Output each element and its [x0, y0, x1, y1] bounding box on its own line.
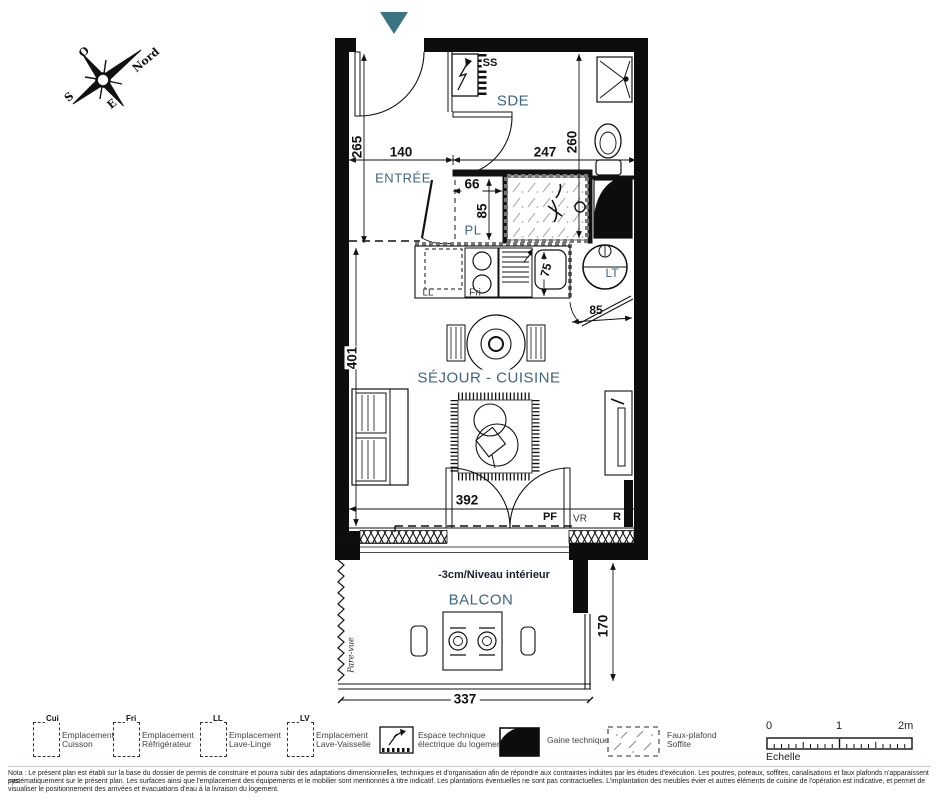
- legend-faux-plafond-icon: [607, 726, 661, 759]
- shower: [506, 176, 588, 241]
- sofa: [352, 389, 408, 485]
- legend-lave-vaisselle-label: Emplacement Lave-Vaisselle: [316, 731, 371, 749]
- dim-337: 337: [451, 692, 480, 707]
- dim-170: 170: [596, 615, 611, 638]
- legend-lave-linge-tag: LL: [212, 714, 224, 723]
- footer-divider: [8, 766, 931, 767]
- floor-plan-page: Nord O S E SDE ENTRÉE PL SÉJOUR - CUISIN…: [0, 0, 939, 800]
- room-label-sde: SDE: [497, 93, 529, 110]
- legend-espace-technique-label: Espace technique électrique du logement: [418, 731, 504, 749]
- room-label-pl: PL: [465, 223, 482, 238]
- dim-140: 140: [387, 145, 416, 160]
- electrical-panel: [452, 54, 478, 96]
- room-label-balcon: BALCON: [449, 592, 514, 609]
- legend-cuisson-tag: Cui: [45, 714, 60, 723]
- label-lt: LT: [605, 266, 618, 280]
- legend-gaine-technique-label: Gaine technique: [547, 736, 609, 745]
- legend-cuisson-icon: [33, 722, 60, 757]
- sde-door: [453, 112, 512, 176]
- technical-duct: [594, 180, 632, 238]
- dim-85-pl: 85: [475, 203, 490, 218]
- exterior-walls: [335, 38, 648, 613]
- legend-espace-technique-icon: [379, 725, 415, 756]
- label-pare-vue: Pare-vue: [347, 637, 356, 672]
- dim-85-door: 85: [589, 303, 602, 317]
- scale-2m: 2m: [898, 720, 913, 732]
- legend-faux-plafond-label: Faux-plafond Soffite: [667, 731, 717, 749]
- label-fri: Fri: [469, 288, 481, 299]
- radiator: [624, 480, 633, 527]
- scale-0: 0: [766, 720, 772, 732]
- dim-66: 66: [461, 177, 482, 192]
- legend-refrigerateur-icon: [113, 722, 140, 757]
- legend-lave-vaisselle-tag: LV: [299, 714, 311, 723]
- legend-cuisson-label: Emplacement Cuisson: [62, 731, 114, 749]
- nota-line-3: visualiser le positionnement des arrivée…: [8, 786, 933, 794]
- nota-line-2: systématiquement sur le présent plan. Le…: [8, 778, 933, 786]
- legend-gaine-technique-icon: [499, 727, 541, 758]
- dim-265: 265: [350, 136, 365, 159]
- legend-lave-vaisselle-icon: [287, 722, 314, 757]
- room-label-entree: ENTRÉE: [375, 171, 431, 186]
- dim-260: 260: [565, 131, 580, 154]
- soffit-dashed-lines: [349, 241, 577, 532]
- toilet: [595, 124, 621, 175]
- rug-and-armchair: [454, 396, 536, 477]
- label-pf: PF: [543, 511, 557, 523]
- entry-marker-icon: [380, 12, 408, 34]
- label-ss: SS: [482, 57, 499, 69]
- closet-door: [422, 180, 453, 244]
- entry-door: [355, 52, 424, 116]
- room-label-sejour-cuisine: SÉJOUR - CUISINE: [415, 370, 562, 387]
- washbasin: [597, 57, 632, 102]
- label-ll: LL: [422, 288, 433, 299]
- label-r: R: [613, 511, 621, 523]
- label-vr: VR: [573, 514, 587, 525]
- legend-lave-linge-icon: [200, 722, 227, 757]
- legend-refrigerateur-tag: Fri: [125, 714, 137, 723]
- sideboard: [605, 391, 632, 475]
- scale-caption: Echelle: [766, 751, 800, 763]
- legend-lave-linge-label: Emplacement Lave-Linge: [229, 731, 281, 749]
- dim-247: 247: [531, 145, 560, 160]
- legend-refrigerateur-label: Emplacement Réfrigérateur: [142, 731, 194, 749]
- dim-392: 392: [453, 493, 482, 508]
- scale-ruler: [766, 737, 914, 751]
- dim-401: 401: [345, 347, 360, 370]
- label-niveau: -3cm/Niveau intérieur: [438, 569, 550, 581]
- dining-table: [447, 315, 545, 373]
- scale-1: 1: [836, 720, 842, 732]
